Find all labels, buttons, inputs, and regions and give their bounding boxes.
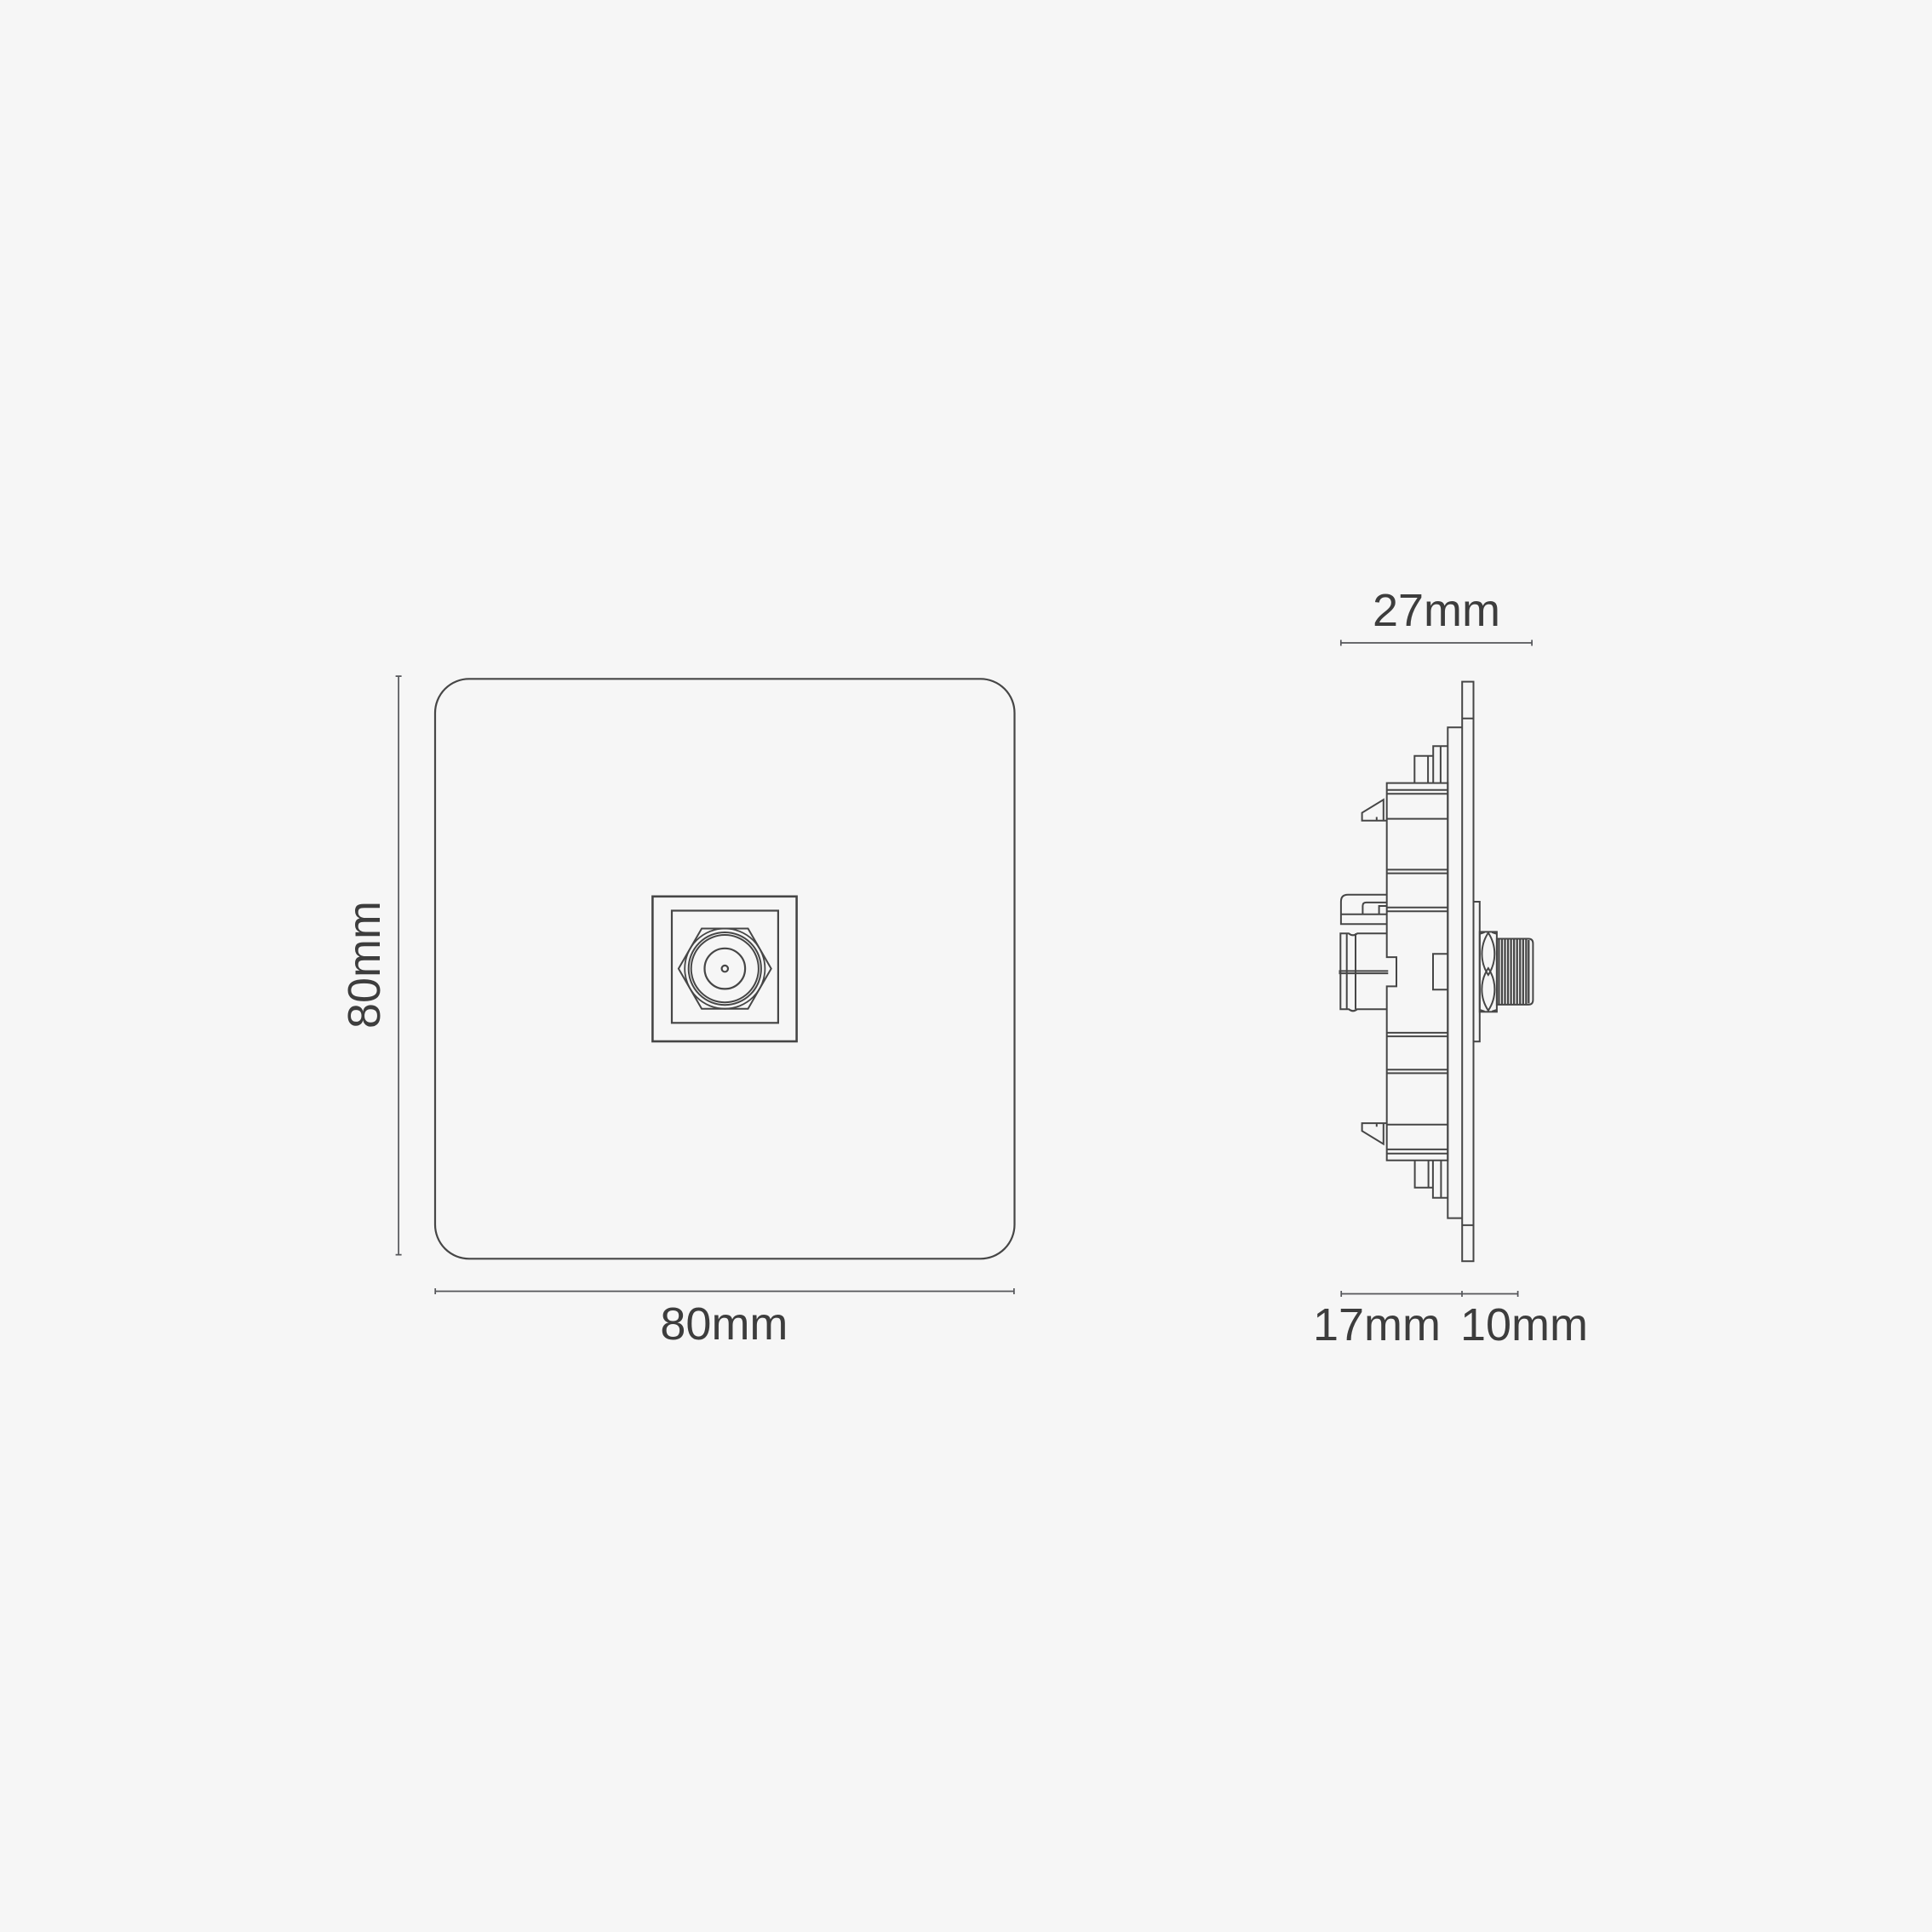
svg-text:10mm: 10mm xyxy=(1460,1299,1588,1350)
svg-text:27mm: 27mm xyxy=(1373,585,1500,636)
svg-text:17mm: 17mm xyxy=(1313,1299,1441,1350)
svg-text:80mm: 80mm xyxy=(339,901,390,1029)
svg-text:80mm: 80mm xyxy=(660,1299,788,1350)
